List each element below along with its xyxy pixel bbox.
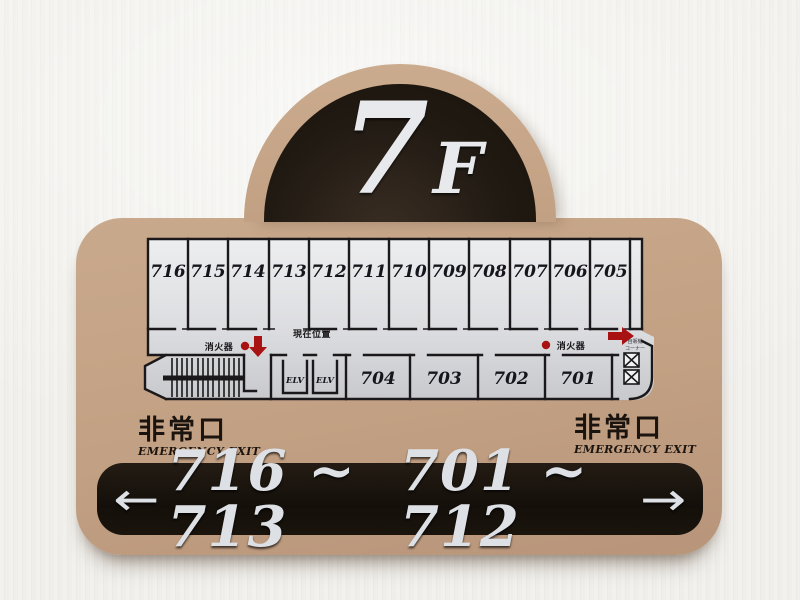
bottom-direction-bar: ← 716 ~ 713 701 ~ 712 →	[97, 463, 703, 535]
fire-extinguisher-dot-right-icon	[542, 341, 550, 349]
room-706: 706	[552, 262, 588, 282]
current-location-label: 現在位置	[293, 328, 331, 340]
room-705: 705	[592, 262, 628, 282]
left-range-label: 716 ~ 713	[168, 443, 400, 555]
sign-dome: 7 F	[264, 84, 536, 222]
elevator-2-label: ELV	[315, 376, 335, 386]
room-712: 712	[311, 262, 347, 282]
fire-extinguisher-dot-left-icon	[241, 342, 249, 350]
emergency-exit-right-jp: 非常口	[574, 415, 696, 443]
room-714: 714	[230, 262, 266, 282]
floor-suffix: F	[433, 134, 483, 204]
room-710: 710	[391, 262, 427, 282]
floor-label: 7 F	[276, 86, 548, 212]
fire-extinguisher-label-left: 消火器	[205, 341, 234, 353]
floor-guide-sign: 7 F ELV ELV	[76, 218, 722, 555]
room-708: 708	[471, 262, 507, 282]
room-709: 709	[431, 262, 467, 282]
room-716: 716	[150, 262, 186, 282]
floor-plan: ELV ELV 716 715 714 713 712 711 710 709 …	[140, 233, 660, 413]
room-711: 711	[351, 262, 387, 282]
right-range-label: 701 ~ 712	[400, 443, 632, 555]
room-701: 701	[560, 369, 596, 389]
left-arrow-icon: ←	[113, 476, 159, 522]
right-arrow-icon: →	[641, 476, 687, 522]
floor-number: 7	[341, 86, 429, 212]
vending-label-line2: コーナー	[625, 346, 645, 352]
room-707: 707	[512, 262, 548, 282]
room-715: 715	[190, 262, 226, 282]
room-702: 702	[493, 369, 529, 389]
room-713: 713	[271, 262, 307, 282]
room-703: 703	[426, 369, 462, 389]
right-range-group: 701 ~ 712 →	[400, 443, 683, 555]
left-range-group: ← 716 ~ 713	[117, 443, 400, 555]
room-704: 704	[360, 369, 396, 389]
elevator-1-label: ELV	[285, 376, 305, 386]
vending-label-line1: 自販機	[627, 338, 642, 345]
fire-extinguisher-label-right: 消火器	[557, 340, 586, 352]
wall-background: { "floor": { "number": "7", "suffix": "F…	[0, 0, 800, 600]
